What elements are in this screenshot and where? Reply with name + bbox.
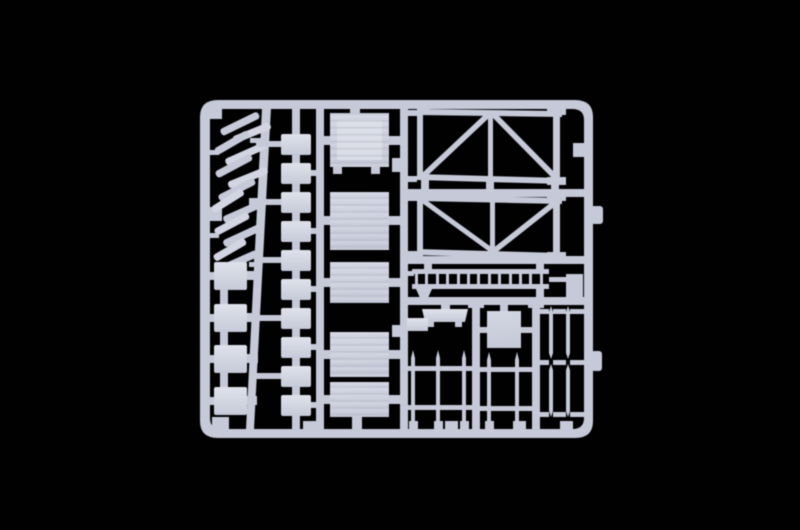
block-part: [281, 221, 311, 242]
rod-foot: [485, 421, 494, 429]
sprue-gate: [256, 141, 281, 147]
block-part: [281, 395, 311, 416]
sprue-gate: [491, 406, 515, 411]
ladder-rung: [498, 269, 501, 289]
rod-part: [436, 350, 440, 421]
sprue-gate: [292, 155, 300, 163]
sprue-gate: [466, 405, 472, 410]
rod-segment: [566, 364, 570, 417]
sprue-gate: [389, 136, 400, 145]
sprue-gate: [421, 180, 429, 190]
sprue-gate: [540, 309, 549, 314]
sprue-gate: [466, 366, 472, 371]
sprue-gate: [540, 412, 549, 417]
sprue-gate: [311, 286, 316, 292]
sprue-gate: [440, 405, 462, 410]
sprue-gate: [553, 309, 566, 314]
sprue-gate: [404, 405, 411, 410]
ladder-rail: [412, 284, 549, 289]
sprue-gate: [292, 358, 300, 366]
sprue-gate: [486, 181, 494, 190]
panel-texture: [330, 382, 389, 417]
sprue-gate: [292, 387, 300, 395]
sprue-gate: [247, 396, 257, 405]
ladder-rung: [446, 269, 449, 289]
ladder-rung: [529, 269, 532, 289]
runner-vertical: [316, 108, 324, 429]
runner-tab: [392, 325, 400, 337]
sprue-gate: [570, 412, 584, 417]
block-part: [281, 250, 311, 271]
sprue-gate: [324, 136, 330, 145]
panel-texture: [330, 192, 389, 250]
sprue-gate: [536, 289, 544, 298]
sprue-gate: [292, 184, 300, 192]
block-part: [281, 134, 311, 155]
sprue-gate: [540, 360, 549, 365]
sprue-gate: [389, 216, 400, 225]
sprue-gate: [324, 278, 330, 287]
truss-flange: [547, 252, 566, 260]
sprue-gate: [371, 167, 380, 174]
sprue-gate: [553, 412, 566, 417]
sprue-gate: [389, 395, 400, 404]
sprue-gate: [209, 314, 214, 322]
sprue-gate: [252, 373, 281, 379]
rod-part: [462, 350, 466, 421]
frame-outer-tab: [591, 206, 603, 224]
sprue-gate: [292, 300, 300, 308]
runner-vertical: [400, 108, 408, 429]
sprue-gate: [440, 366, 462, 371]
ladder-rung: [457, 269, 460, 289]
sprue-gate: [324, 350, 330, 359]
sprue-gate: [441, 303, 450, 310]
sprue-gate: [408, 271, 414, 276]
workbench-leg: [427, 322, 434, 327]
truss-left-post: [417, 195, 423, 256]
ladder-rail: [412, 269, 549, 274]
small-box-part: [407, 318, 428, 331]
ladder-rung: [540, 269, 543, 289]
ladder-rung: [488, 269, 491, 289]
square-plate: [487, 311, 521, 348]
sprue-gate: [389, 278, 400, 287]
rod-part: [487, 352, 491, 421]
sprue-gate: [209, 355, 214, 363]
sprue-gate: [292, 416, 300, 429]
frame-inner-tab: [560, 421, 573, 429]
photo-stage: [0, 0, 800, 530]
truss-center-post: [488, 112, 493, 181]
box-part: [214, 345, 247, 373]
ladder-rung: [519, 269, 522, 289]
rod-foot: [460, 421, 469, 429]
sprue-gate: [333, 167, 342, 174]
frame-outer-tab: [591, 351, 602, 371]
sprue-gate: [253, 315, 281, 321]
block-part: [281, 308, 311, 329]
sprue-gate: [352, 417, 362, 429]
runner-horizontal: [400, 297, 584, 305]
rod-foot: [513, 421, 522, 429]
sprue-gate: [209, 150, 219, 155]
sprue-gate: [255, 199, 281, 205]
frame-inner-tab: [209, 108, 222, 119]
sprue-gate: [389, 350, 400, 359]
sprue-gate: [220, 373, 228, 387]
workbench-leg: [455, 322, 462, 327]
sprue-gate: [408, 110, 417, 116]
truss-flange: [547, 194, 566, 201]
sprue-gate: [480, 406, 487, 411]
sprue-gate: [350, 106, 360, 114]
sprue-photo: [0, 0, 800, 530]
sprue-gate: [209, 233, 219, 238]
panel-texture: [330, 262, 389, 303]
truss-left-post: [417, 109, 423, 180]
ladder-rung: [425, 269, 428, 289]
sprue-gate: [292, 271, 300, 279]
block-part: [281, 192, 311, 213]
rod-foot: [409, 421, 418, 429]
sprue-gate: [209, 272, 214, 280]
box-part: [214, 304, 247, 332]
ladder-rung: [467, 269, 470, 289]
sprue-gate: [220, 332, 228, 345]
frame-inner-tab: [303, 421, 317, 429]
sprue-gate: [521, 327, 532, 333]
sprue-gate: [254, 257, 281, 263]
pad-part: [566, 274, 583, 298]
sprue-gate: [404, 366, 411, 371]
sprue-gate: [551, 182, 559, 190]
sprue-gate: [408, 251, 417, 257]
sprue-gate: [220, 290, 228, 304]
rod-segment: [549, 306, 553, 359]
sprue-gate: [480, 327, 487, 333]
sprue-gate: [536, 263, 544, 270]
sprue-gate: [324, 216, 330, 225]
sprue-gate: [415, 366, 436, 371]
sprue-gate: [519, 367, 532, 372]
sprue-gate: [553, 360, 566, 365]
sprue-gate: [247, 354, 258, 363]
block-part: [281, 366, 311, 387]
sprue-gate: [311, 170, 316, 176]
sprue-gate: [292, 329, 300, 337]
rod-segment: [549, 364, 553, 417]
sprue-gate: [570, 360, 584, 365]
sprue-gate: [247, 271, 259, 280]
sprue-gate: [408, 195, 417, 201]
runner-vertical: [532, 300, 540, 429]
sprue-gate: [549, 277, 566, 282]
sprue-gate: [311, 344, 316, 350]
sprue-gate: [311, 228, 316, 234]
box-part: [214, 262, 247, 290]
sprue-gate: [311, 402, 316, 408]
ladder-rung: [477, 269, 480, 289]
runner-tab: [392, 158, 400, 172]
sprue-gate: [415, 405, 436, 410]
box-part: [214, 387, 247, 415]
sprue-gate: [480, 367, 487, 372]
sprue-gate: [292, 242, 300, 250]
frame-inner-tab: [445, 421, 458, 429]
ladder-rung: [509, 269, 512, 289]
block-part: [281, 279, 311, 300]
runner-vertical: [472, 300, 480, 429]
rod-foot: [434, 421, 443, 429]
ladder-rung: [436, 269, 439, 289]
workbench-part: [422, 309, 468, 322]
frame-inner-tab: [573, 143, 584, 157]
sprue-gate: [292, 108, 300, 135]
rod-part: [515, 352, 519, 421]
sprue-gate: [292, 213, 300, 221]
sprue-gate: [408, 176, 417, 182]
block-part: [281, 163, 311, 184]
sprue-gate: [324, 395, 330, 404]
sprue-gate: [209, 397, 214, 405]
sprue-gate: [491, 367, 515, 372]
ladder-rung: [415, 269, 418, 289]
rod-part: [411, 350, 415, 421]
truss-flange: [547, 108, 566, 115]
sprue-gate: [500, 304, 508, 312]
sprue-gate: [570, 309, 584, 314]
corner-part: [212, 417, 229, 430]
panel-texture: [330, 113, 389, 167]
block-part: [281, 337, 311, 358]
sprue-gate: [424, 263, 432, 270]
sprue-gate: [519, 406, 532, 411]
panel-texture: [330, 332, 389, 377]
rod-segment: [566, 306, 570, 359]
